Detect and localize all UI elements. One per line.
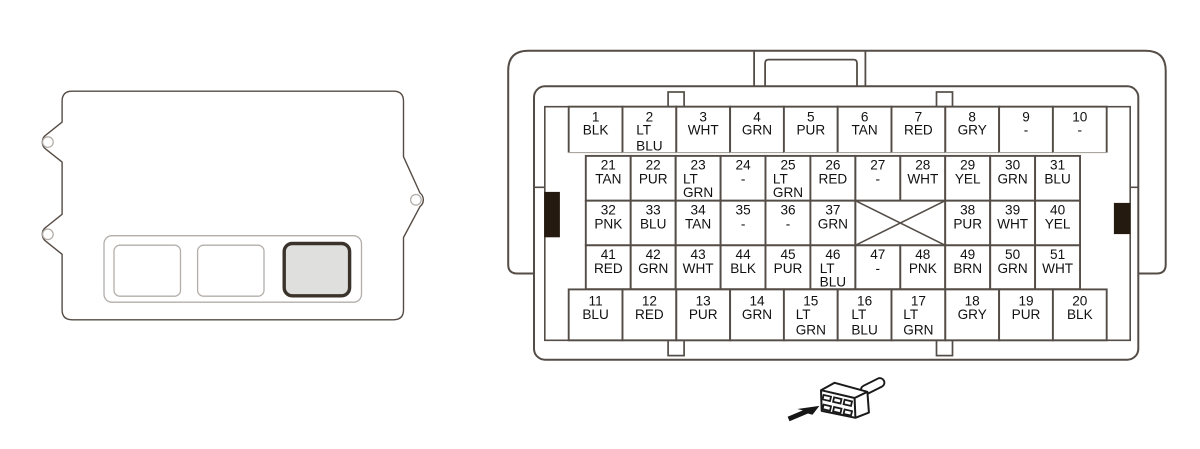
- svg-text:BLU: BLU: [636, 138, 662, 153]
- svg-text:46: 46: [825, 247, 840, 262]
- svg-text:PNK: PNK: [909, 261, 937, 276]
- svg-text:YEL: YEL: [955, 172, 981, 187]
- svg-text:40: 40: [1050, 202, 1066, 217]
- svg-text:29: 29: [960, 158, 975, 173]
- svg-text:38: 38: [960, 202, 975, 217]
- svg-text:BRN: BRN: [953, 261, 982, 276]
- svg-text:BLU: BLU: [582, 307, 608, 322]
- svg-text:31: 31: [1050, 158, 1065, 173]
- svg-text:GRN: GRN: [773, 185, 803, 200]
- svg-text:BLK: BLK: [1067, 307, 1093, 322]
- svg-text:PUR: PUR: [689, 307, 718, 322]
- svg-text:26: 26: [825, 158, 840, 173]
- svg-text:27: 27: [870, 158, 885, 173]
- svg-text:GRN: GRN: [818, 216, 848, 231]
- svg-text:51: 51: [1050, 247, 1065, 262]
- svg-text:GRY: GRY: [958, 123, 987, 138]
- svg-text:RED: RED: [904, 123, 933, 138]
- svg-text:BLU: BLU: [820, 274, 846, 289]
- svg-text:GRN: GRN: [742, 307, 772, 322]
- svg-text:TAN: TAN: [852, 123, 878, 138]
- svg-text:37: 37: [825, 202, 840, 217]
- svg-text:24: 24: [736, 158, 752, 173]
- svg-text:WHT: WHT: [1042, 261, 1073, 276]
- svg-text:LT: LT: [851, 307, 866, 322]
- svg-text:25: 25: [780, 158, 795, 173]
- svg-text:GRN: GRN: [903, 323, 933, 338]
- svg-text:-: -: [741, 216, 746, 231]
- svg-text:WHT: WHT: [683, 261, 714, 276]
- svg-text:22: 22: [646, 158, 661, 173]
- svg-text:RED: RED: [635, 307, 664, 322]
- svg-text:BLK: BLK: [583, 123, 609, 138]
- svg-text:30: 30: [1005, 158, 1021, 173]
- svg-text:BLU: BLU: [640, 216, 666, 231]
- svg-text:BLU: BLU: [1044, 172, 1070, 187]
- svg-text:50: 50: [1005, 247, 1021, 262]
- svg-text:PUR: PUR: [1012, 307, 1041, 322]
- svg-text:RED: RED: [594, 261, 623, 276]
- svg-text:GRY: GRY: [958, 307, 987, 322]
- svg-text:-: -: [1078, 123, 1083, 138]
- svg-text:PUR: PUR: [639, 172, 668, 187]
- svg-text:44: 44: [736, 247, 752, 262]
- svg-text:BLU: BLU: [851, 323, 877, 338]
- svg-text:YEL: YEL: [1045, 216, 1071, 231]
- svg-text:33: 33: [646, 202, 661, 217]
- svg-text:BLK: BLK: [730, 261, 756, 276]
- svg-text:GRN: GRN: [997, 172, 1027, 187]
- svg-text:41: 41: [601, 247, 616, 262]
- svg-text:GRN: GRN: [742, 123, 772, 138]
- svg-text:36: 36: [780, 202, 795, 217]
- svg-text:48: 48: [915, 247, 930, 262]
- svg-text:28: 28: [915, 158, 930, 173]
- svg-text:23: 23: [691, 158, 706, 173]
- svg-text:WHT: WHT: [997, 216, 1028, 231]
- svg-text:42: 42: [646, 247, 661, 262]
- svg-text:PUR: PUR: [796, 123, 825, 138]
- svg-text:WHT: WHT: [688, 123, 719, 138]
- svg-text:TAN: TAN: [595, 172, 621, 187]
- svg-text:-: -: [1024, 123, 1029, 138]
- svg-text:GRN: GRN: [796, 323, 826, 338]
- svg-text:GRN: GRN: [683, 185, 713, 200]
- svg-text:39: 39: [1005, 202, 1020, 217]
- svg-text:GRN: GRN: [638, 261, 668, 276]
- svg-text:-: -: [741, 172, 746, 187]
- svg-text:-: -: [876, 261, 881, 276]
- svg-text:LT: LT: [636, 123, 651, 138]
- svg-text:35: 35: [736, 202, 751, 217]
- svg-text:32: 32: [601, 202, 616, 217]
- svg-text:21: 21: [601, 158, 616, 173]
- svg-text:PNK: PNK: [594, 216, 622, 231]
- svg-text:49: 49: [960, 247, 975, 262]
- svg-text:PUR: PUR: [774, 261, 803, 276]
- svg-text:-: -: [876, 172, 881, 187]
- svg-text:WHT: WHT: [907, 172, 938, 187]
- svg-text:34: 34: [691, 202, 707, 217]
- svg-text:-: -: [786, 216, 791, 231]
- svg-text:LT: LT: [796, 307, 811, 322]
- svg-text:47: 47: [870, 247, 885, 262]
- svg-text:RED: RED: [819, 172, 848, 187]
- svg-text:43: 43: [691, 247, 706, 262]
- svg-text:GRN: GRN: [997, 261, 1027, 276]
- svg-text:45: 45: [780, 247, 795, 262]
- svg-text:PUR: PUR: [953, 216, 982, 231]
- svg-text:LT: LT: [903, 307, 918, 322]
- svg-text:TAN: TAN: [685, 216, 711, 231]
